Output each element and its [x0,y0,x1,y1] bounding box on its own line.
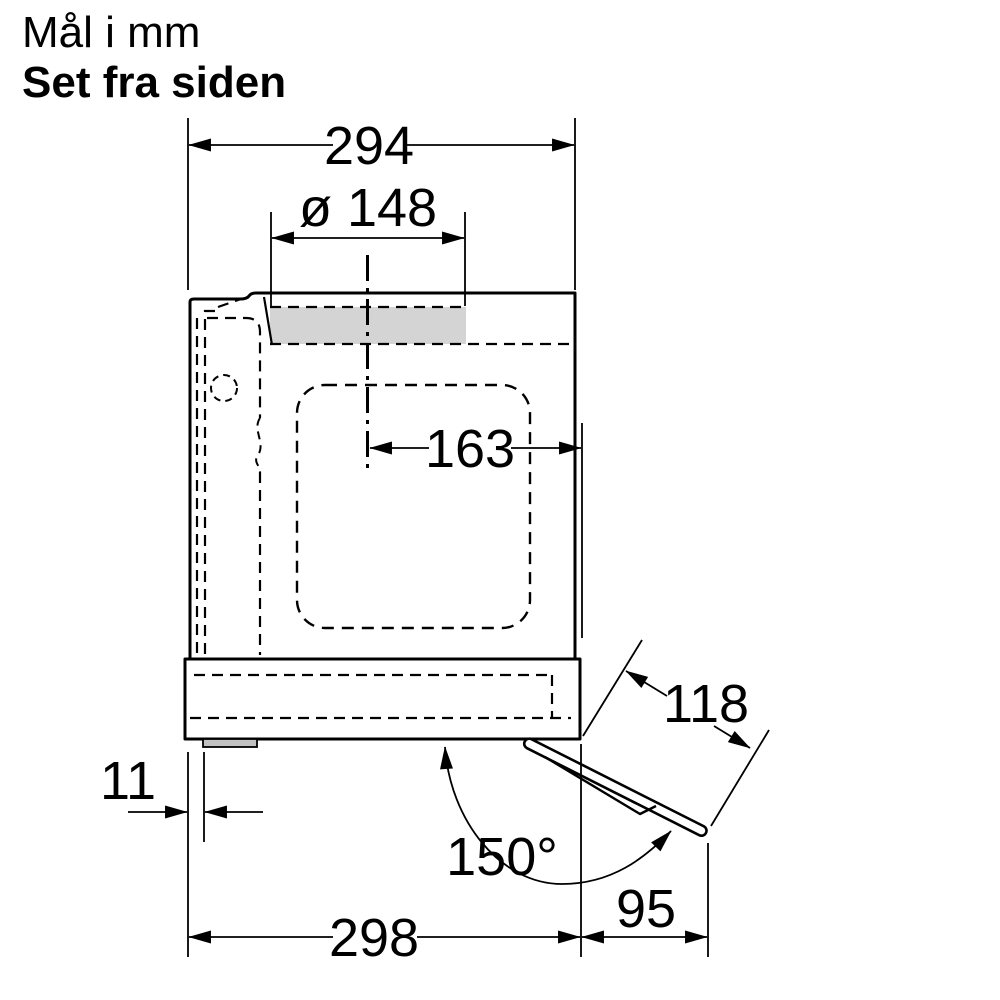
side-view-drawing: 294 ø 148 163 11 150° [0,0,1000,1000]
dim-top-width-label: 294 [324,116,414,176]
dim-duct-center-offset-label: 163 [425,419,515,479]
view-title: Set fra siden [22,58,286,108]
diagram-page: Mål i mm Set fra siden [0,0,1000,1000]
dim-flap-projection: 95 [582,843,708,957]
dim-opening-angle-label: 150° [446,827,558,887]
title-block: Mål i mm Set fra siden [22,8,286,108]
latch-squiggle [256,418,261,472]
dim-flap-projection-label: 95 [616,879,676,939]
hidden-circle [211,375,237,401]
left-channel-outer [205,311,215,655]
dim-line [626,671,667,696]
dim-flap-length-label: 118 [663,674,749,734]
units-note: Mål i mm [22,8,286,58]
dim-flap-length: 118 [583,640,769,826]
dim-duct-diameter-label: ø 148 [299,178,437,238]
left-compartment [207,318,260,418]
dim-duct-center-offset: 163 [370,419,582,638]
dim-duct-diameter: ø 148 [271,178,465,306]
body-outline [190,293,575,659]
plinth-outline [185,659,580,739]
dim-left-offset-label: 11 [100,751,156,811]
duct-outlet [264,297,570,345]
dim-opening-angle: 150° [445,747,671,887]
ext-line [583,640,642,736]
dim-left-offset: 11 [100,751,263,957]
flap-panel [523,737,709,837]
flap [523,737,709,837]
foot-pad [203,739,257,747]
interior-hidden-lines [190,299,571,718]
ext-line [711,730,769,826]
dim-body-depth-label: 298 [329,908,419,968]
appliance-body [185,293,580,739]
